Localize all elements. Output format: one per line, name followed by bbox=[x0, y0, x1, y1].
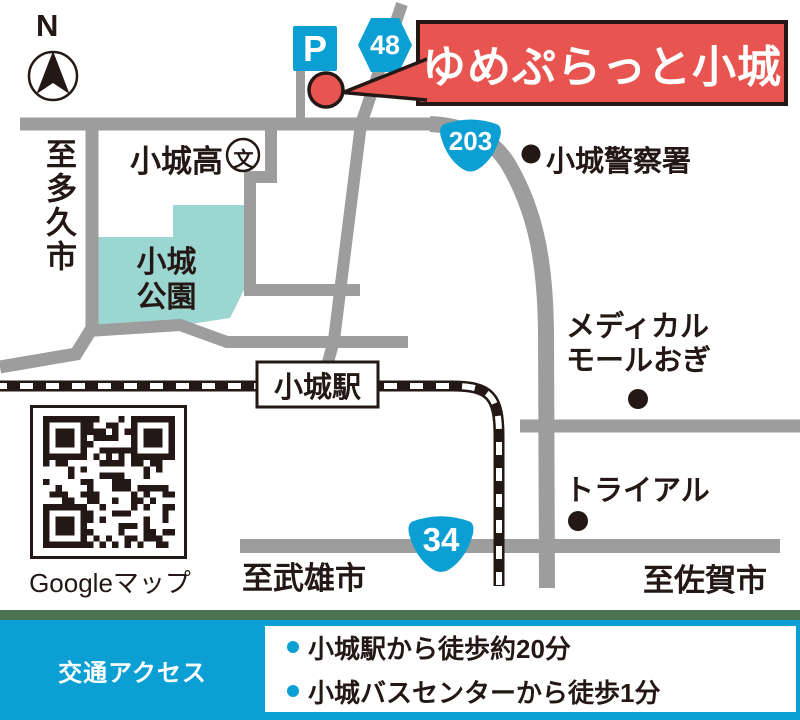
direction-label-taku: 至多久市 bbox=[36, 138, 81, 274]
compass-icon bbox=[29, 51, 77, 100]
qr-code-icon bbox=[43, 416, 175, 548]
trial-store-label: トライアル bbox=[565, 467, 710, 509]
highschool-label: 小城高 bbox=[130, 136, 223, 181]
route34-number: 34 bbox=[409, 516, 473, 564]
route48-number: 48 bbox=[358, 18, 412, 72]
access-item-text: 小城駅から徒歩約20分 bbox=[308, 629, 571, 666]
direction-label-takeo: 至武雄市 bbox=[242, 553, 366, 598]
access-panel: 小城駅から徒歩約20分 小城バスセンターから徒歩1分 bbox=[265, 626, 796, 712]
park-label: 小城公園 bbox=[118, 245, 215, 315]
footer-divider bbox=[0, 610, 800, 620]
bullet-icon bbox=[287, 641, 299, 653]
bullet-icon bbox=[287, 685, 299, 697]
access-heading: 交通アクセス bbox=[0, 620, 265, 720]
destination-title: ゆめぷらっと小城 bbox=[418, 22, 786, 104]
police-dot bbox=[522, 145, 541, 164]
school-symbol-label: 文 bbox=[232, 143, 255, 172]
qr-caption: Googleマップ bbox=[26, 563, 194, 600]
access-item-text: 小城バスセンターから徒歩1分 bbox=[308, 673, 660, 710]
parking-sign-label: P bbox=[293, 26, 337, 71]
direction-label-saga: 至佐賀市 bbox=[643, 555, 767, 600]
access-bar: 交通アクセス 小城駅から徒歩約20分 小城バスセンターから徒歩1分 bbox=[0, 620, 800, 720]
access-item: 小城バスセンターから徒歩1分 bbox=[287, 673, 796, 710]
qr-code-box bbox=[30, 405, 187, 559]
station-label: 小城駅 bbox=[257, 362, 378, 407]
compass-north-label: N bbox=[36, 8, 58, 44]
parking-sign-pole bbox=[296, 70, 305, 120]
map-area: N 至多久市 小城高 文 P 48 ゆめぷらっと小城 203 小城警察署 小城公… bbox=[0, 0, 800, 612]
footer: 交通アクセス 小城駅から徒歩約20分 小城バスセンターから徒歩1分 bbox=[0, 610, 800, 720]
medical-mall-label: メディカルモールおぎ bbox=[566, 310, 711, 378]
trial-dot bbox=[568, 511, 588, 531]
route203-number: 203 bbox=[439, 119, 502, 163]
police-station-label: 小城警察署 bbox=[546, 138, 691, 180]
road-park-bottom bbox=[88, 325, 408, 342]
destination-marker bbox=[309, 73, 343, 107]
ogi-access-map: N 至多久市 小城高 文 P 48 ゆめぷらっと小城 203 小城警察署 小城公… bbox=[0, 0, 800, 720]
medical-dot bbox=[628, 389, 648, 409]
access-item: 小城駅から徒歩約20分 bbox=[287, 629, 796, 666]
